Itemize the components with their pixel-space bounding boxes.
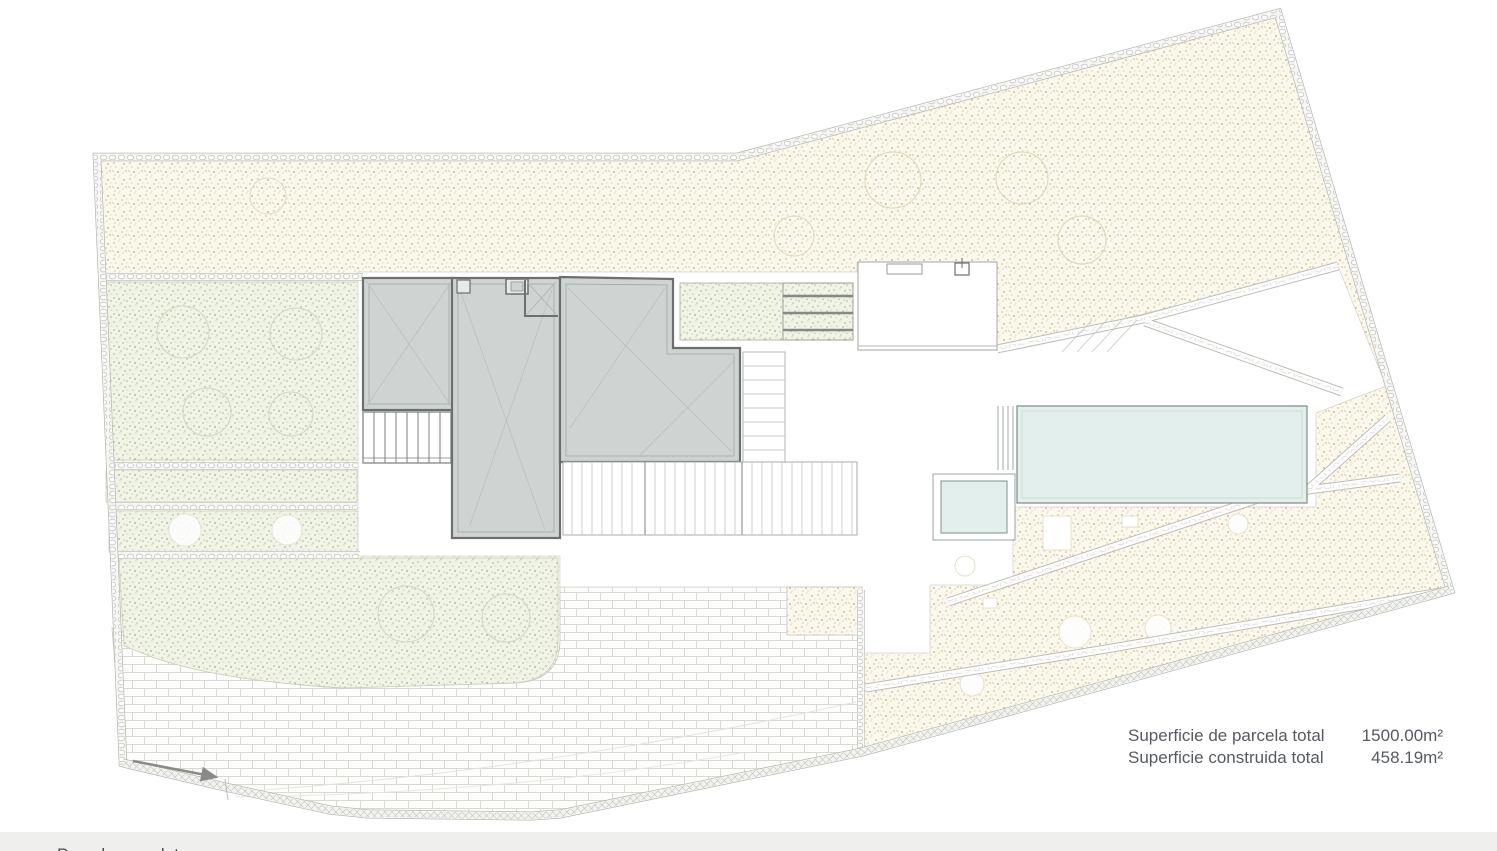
roof-left-block bbox=[363, 278, 455, 410]
roof-hatch bbox=[457, 280, 470, 293]
louvered-pergola bbox=[783, 283, 853, 340]
gravel-pocket bbox=[787, 587, 862, 635]
built-area-label: Superficie construida total bbox=[1128, 748, 1324, 767]
gate-element bbox=[887, 264, 922, 274]
roof-middle-block bbox=[452, 278, 560, 538]
parcel-area-value: 1500.00m² bbox=[1362, 726, 1444, 745]
site-plan-drawing: Superficie de parcela total 1500.00m² Su… bbox=[0, 0, 1497, 851]
wood-deck bbox=[563, 462, 857, 535]
roof-planter bbox=[680, 283, 783, 340]
site-plan-page: Superficie de parcela total 1500.00m² Su… bbox=[0, 0, 1497, 851]
parcel-area-label: Superficie de parcela total bbox=[1128, 726, 1325, 745]
built-area-value: 458.19m² bbox=[1371, 748, 1443, 767]
carport-pergola bbox=[363, 412, 451, 463]
spa-pool bbox=[933, 474, 1015, 540]
swimming-pool bbox=[998, 406, 1307, 503]
side-steps bbox=[743, 352, 785, 462]
footer-caption[interactable]: Parcela completa bbox=[0, 832, 1497, 851]
footer-bar: Parcela completa bbox=[0, 832, 1497, 851]
area-summary: Superficie de parcela total 1500.00m² Su… bbox=[1128, 726, 1443, 767]
